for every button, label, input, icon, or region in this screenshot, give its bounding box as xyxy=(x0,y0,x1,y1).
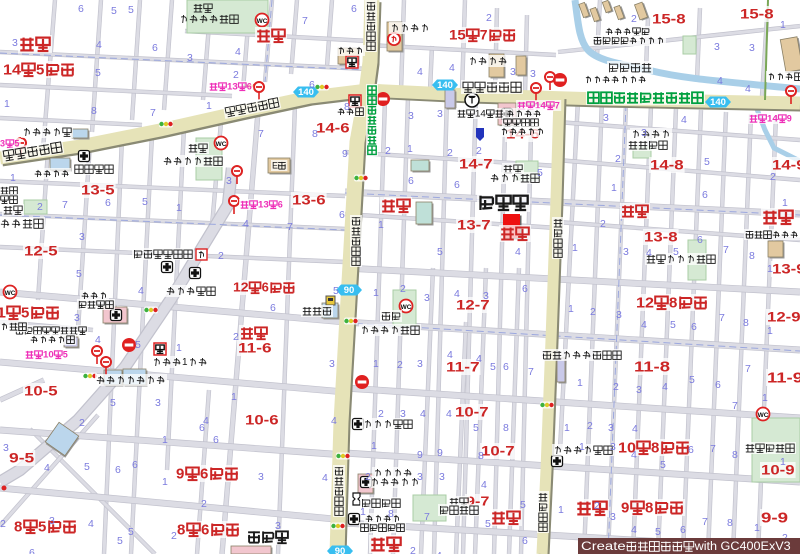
svg-text:2: 2 xyxy=(201,498,207,510)
svg-text:3: 3 xyxy=(437,108,443,120)
svg-text:5: 5 xyxy=(670,319,676,331)
svg-text:7: 7 xyxy=(702,516,708,528)
svg-text:7: 7 xyxy=(302,15,308,27)
svg-text:8: 8 xyxy=(669,294,677,311)
svg-text:1: 1 xyxy=(4,98,10,110)
svg-text:1: 1 xyxy=(373,358,379,370)
svg-text:5: 5 xyxy=(84,461,90,473)
svg-text:5: 5 xyxy=(76,268,82,280)
svg-text:9: 9 xyxy=(417,449,423,461)
svg-text:7: 7 xyxy=(719,312,725,324)
svg-text:5: 5 xyxy=(63,349,68,359)
svg-text:4: 4 xyxy=(481,479,487,491)
svg-text:9: 9 xyxy=(176,465,184,482)
svg-text:12: 12 xyxy=(233,280,249,295)
svg-text:6: 6 xyxy=(201,521,209,538)
svg-text:WC: WC xyxy=(758,412,769,419)
svg-text:13-8: 13-8 xyxy=(644,229,678,245)
svg-text:4: 4 xyxy=(515,246,521,258)
svg-text:3: 3 xyxy=(749,42,755,54)
svg-text:6: 6 xyxy=(200,465,208,482)
svg-text:10-7: 10-7 xyxy=(481,443,515,459)
svg-text:1: 1 xyxy=(767,263,773,275)
svg-text:6: 6 xyxy=(247,81,252,91)
svg-text:6: 6 xyxy=(309,79,315,91)
svg-text:5: 5 xyxy=(117,535,123,547)
svg-text:5: 5 xyxy=(485,518,491,530)
svg-text:11-6: 11-6 xyxy=(238,340,272,356)
svg-text:13-7: 13-7 xyxy=(457,217,491,233)
svg-text:8: 8 xyxy=(388,508,394,520)
svg-text:2: 2 xyxy=(587,420,593,432)
svg-text:2: 2 xyxy=(365,471,371,483)
svg-text:8: 8 xyxy=(503,422,509,434)
svg-text:1: 1 xyxy=(162,434,168,446)
svg-text:E: E xyxy=(272,160,278,170)
svg-text:Create: Create xyxy=(581,541,626,553)
svg-text:6: 6 xyxy=(454,179,460,191)
svg-text:13: 13 xyxy=(258,199,269,209)
svg-text:10: 10 xyxy=(43,349,54,359)
svg-text:5: 5 xyxy=(95,67,101,79)
svg-text:3: 3 xyxy=(623,246,629,258)
svg-text:4: 4 xyxy=(446,408,452,420)
svg-text:6: 6 xyxy=(152,42,158,54)
svg-text:3: 3 xyxy=(641,127,647,139)
svg-text:14-9: 14-9 xyxy=(772,157,800,173)
svg-text:2: 2 xyxy=(37,201,43,213)
svg-text:13-6: 13-6 xyxy=(292,192,326,208)
svg-text:8: 8 xyxy=(651,439,659,456)
svg-text:2: 2 xyxy=(385,145,391,157)
svg-text:6: 6 xyxy=(522,535,528,547)
svg-text:6: 6 xyxy=(408,175,414,187)
svg-text:9: 9 xyxy=(342,148,348,160)
svg-text:WC: WC xyxy=(257,18,268,25)
svg-text:2: 2 xyxy=(631,13,637,25)
svg-text:14: 14 xyxy=(475,108,486,118)
svg-text:2: 2 xyxy=(613,381,619,393)
svg-text:2: 2 xyxy=(410,545,416,554)
svg-text:3: 3 xyxy=(3,442,9,454)
svg-text:4: 4 xyxy=(717,75,723,87)
svg-text:9-5: 9-5 xyxy=(9,450,34,466)
svg-text:90: 90 xyxy=(344,285,355,296)
svg-text:14-6: 14-6 xyxy=(316,120,350,136)
svg-text:3: 3 xyxy=(226,175,232,187)
svg-text:8: 8 xyxy=(177,521,185,538)
svg-text:8: 8 xyxy=(749,250,755,262)
svg-text:1: 1 xyxy=(754,522,760,534)
svg-text:3: 3 xyxy=(0,138,5,148)
svg-text:1: 1 xyxy=(780,19,786,31)
svg-text:3: 3 xyxy=(275,520,281,532)
svg-text:6: 6 xyxy=(115,464,121,476)
svg-text:3: 3 xyxy=(714,41,720,53)
svg-text:7: 7 xyxy=(287,221,293,233)
svg-text:2: 2 xyxy=(397,359,403,371)
svg-text:10-7: 10-7 xyxy=(455,404,489,420)
svg-text:2: 2 xyxy=(447,147,453,159)
svg-text:9-9: 9-9 xyxy=(761,509,788,526)
svg-text:1: 1 xyxy=(231,391,237,403)
svg-text:5: 5 xyxy=(142,196,148,208)
svg-text:140: 140 xyxy=(710,97,726,108)
svg-text:1: 1 xyxy=(360,506,366,518)
svg-text:1: 1 xyxy=(568,303,574,315)
svg-text:5: 5 xyxy=(128,526,134,538)
svg-text:3: 3 xyxy=(608,422,614,434)
svg-text:2: 2 xyxy=(0,518,6,530)
svg-text:4: 4 xyxy=(95,334,101,346)
svg-text:3: 3 xyxy=(603,112,609,124)
svg-text:5: 5 xyxy=(473,422,479,434)
svg-text:4: 4 xyxy=(235,46,241,58)
svg-text:6: 6 xyxy=(270,302,276,314)
svg-text:4: 4 xyxy=(436,550,442,554)
svg-text:8: 8 xyxy=(645,499,653,516)
svg-text:3: 3 xyxy=(417,358,423,370)
svg-text:12-5: 12-5 xyxy=(24,243,58,259)
svg-text:15-8: 15-8 xyxy=(652,11,686,27)
svg-text:5: 5 xyxy=(537,167,543,179)
svg-text:8: 8 xyxy=(312,128,318,140)
svg-text:3: 3 xyxy=(530,68,536,80)
svg-text:6: 6 xyxy=(680,524,686,536)
svg-text:6: 6 xyxy=(503,361,509,373)
svg-text:12-9: 12-9 xyxy=(767,309,800,325)
svg-text:3: 3 xyxy=(616,309,622,321)
svg-text:5: 5 xyxy=(38,518,46,535)
svg-text:6: 6 xyxy=(29,547,35,554)
svg-text:4: 4 xyxy=(322,472,328,484)
svg-text:5: 5 xyxy=(490,361,496,373)
svg-text:5: 5 xyxy=(660,459,666,471)
svg-text:with GC400ExV3: with GC400ExV3 xyxy=(694,541,791,553)
svg-text:7: 7 xyxy=(732,400,738,412)
svg-text:4: 4 xyxy=(646,247,652,259)
svg-text:2: 2 xyxy=(615,153,621,165)
svg-text:13-5: 13-5 xyxy=(81,182,115,198)
svg-text:9: 9 xyxy=(437,447,443,459)
svg-text:1: 1 xyxy=(162,476,168,488)
svg-text:8: 8 xyxy=(732,449,738,461)
svg-text:1: 1 xyxy=(407,143,413,155)
svg-text:3: 3 xyxy=(258,471,264,483)
svg-text:8: 8 xyxy=(727,517,733,529)
svg-text:1: 1 xyxy=(780,456,786,468)
svg-text:10-9: 10-9 xyxy=(761,462,795,478)
svg-text:3: 3 xyxy=(417,471,423,483)
svg-text:3: 3 xyxy=(408,110,414,122)
svg-text:6: 6 xyxy=(213,434,219,446)
svg-text:11-9: 11-9 xyxy=(767,369,800,386)
svg-text:13-9: 13-9 xyxy=(772,261,800,277)
svg-text:1: 1 xyxy=(564,422,570,434)
svg-text:4: 4 xyxy=(331,415,337,427)
svg-text:1: 1 xyxy=(611,182,617,194)
svg-text:7: 7 xyxy=(62,199,68,211)
svg-text:14-7: 14-7 xyxy=(459,156,493,172)
svg-text:4: 4 xyxy=(417,66,423,78)
svg-text:8: 8 xyxy=(14,518,22,535)
svg-text:4: 4 xyxy=(681,114,687,126)
svg-text:4: 4 xyxy=(662,381,668,393)
svg-text:10-5: 10-5 xyxy=(24,383,58,399)
svg-text:5: 5 xyxy=(437,246,443,258)
svg-text:2: 2 xyxy=(594,500,600,512)
svg-text:5: 5 xyxy=(36,61,44,78)
svg-text:1: 1 xyxy=(782,197,788,209)
svg-text:90: 90 xyxy=(335,546,346,554)
svg-text:7: 7 xyxy=(424,511,430,523)
svg-text:4: 4 xyxy=(243,218,249,230)
svg-text:4: 4 xyxy=(476,353,482,365)
svg-text:1: 1 xyxy=(767,325,773,337)
svg-text:4: 4 xyxy=(449,62,455,74)
svg-text:5: 5 xyxy=(128,4,134,16)
svg-text:2: 2 xyxy=(590,306,596,318)
svg-text:WC: WC xyxy=(216,141,227,148)
svg-text:13: 13 xyxy=(227,81,238,91)
svg-text:6: 6 xyxy=(715,379,721,391)
svg-text:WC: WC xyxy=(401,304,412,311)
svg-text:6: 6 xyxy=(702,189,708,201)
svg-text:1: 1 xyxy=(10,172,16,184)
svg-text:1: 1 xyxy=(182,357,188,368)
svg-text:2: 2 xyxy=(600,218,606,230)
svg-text:6: 6 xyxy=(688,444,694,456)
svg-text:1: 1 xyxy=(762,392,768,404)
svg-text:3: 3 xyxy=(155,397,161,409)
svg-text:5: 5 xyxy=(333,285,339,297)
svg-text:14: 14 xyxy=(767,113,778,123)
svg-text:5: 5 xyxy=(655,526,661,538)
svg-text:6: 6 xyxy=(691,321,697,333)
svg-text:7: 7 xyxy=(528,366,534,378)
svg-text:7: 7 xyxy=(710,443,716,455)
svg-text:1: 1 xyxy=(373,287,379,299)
svg-text:8: 8 xyxy=(478,450,484,462)
svg-text:8: 8 xyxy=(91,105,97,117)
svg-text:4: 4 xyxy=(44,462,50,474)
svg-text:2: 2 xyxy=(378,408,384,420)
svg-text:3: 3 xyxy=(187,52,193,64)
svg-text:2: 2 xyxy=(79,417,85,429)
svg-text:4: 4 xyxy=(447,349,453,361)
svg-text:12: 12 xyxy=(636,294,654,311)
svg-text:5: 5 xyxy=(689,374,695,386)
svg-text:5: 5 xyxy=(21,304,29,321)
svg-text:9: 9 xyxy=(621,499,629,516)
svg-text:5: 5 xyxy=(110,397,116,409)
svg-text:1: 1 xyxy=(572,242,578,254)
svg-text:9: 9 xyxy=(787,113,792,123)
svg-text:3: 3 xyxy=(424,292,430,304)
svg-text:7: 7 xyxy=(745,363,751,375)
svg-text:2: 2 xyxy=(233,331,239,343)
svg-text:11-8: 11-8 xyxy=(634,358,670,375)
svg-text:3: 3 xyxy=(49,515,55,527)
svg-text:7: 7 xyxy=(723,244,729,256)
svg-text:3: 3 xyxy=(610,441,616,453)
svg-text:14-8: 14-8 xyxy=(650,157,684,173)
svg-text:2: 2 xyxy=(770,171,776,183)
svg-text:3: 3 xyxy=(439,471,445,483)
svg-text:3: 3 xyxy=(400,408,406,420)
svg-text:1: 1 xyxy=(579,441,585,453)
svg-text:2: 2 xyxy=(400,283,406,295)
svg-text:6: 6 xyxy=(78,3,84,15)
svg-text:3: 3 xyxy=(610,511,616,523)
svg-text:5: 5 xyxy=(111,5,117,17)
svg-text:6: 6 xyxy=(339,209,345,221)
svg-text:5: 5 xyxy=(704,156,710,168)
svg-text:3: 3 xyxy=(329,358,335,370)
svg-text:1: 1 xyxy=(176,202,182,214)
svg-text:2: 2 xyxy=(476,145,482,157)
svg-text:8: 8 xyxy=(743,317,749,329)
svg-text:1: 1 xyxy=(176,342,182,354)
svg-text:4: 4 xyxy=(420,408,426,420)
svg-text:7: 7 xyxy=(480,27,488,43)
svg-text:8: 8 xyxy=(344,101,350,113)
svg-text:6: 6 xyxy=(105,197,111,209)
svg-text:140: 140 xyxy=(437,80,453,91)
svg-text:1: 1 xyxy=(206,100,212,112)
svg-text:6: 6 xyxy=(278,199,283,209)
svg-text:6: 6 xyxy=(351,3,357,15)
svg-text:6: 6 xyxy=(522,283,528,295)
svg-text:1: 1 xyxy=(371,440,377,452)
svg-text:2: 2 xyxy=(233,69,239,81)
svg-text:WC: WC xyxy=(5,290,16,297)
svg-text:10-6: 10-6 xyxy=(245,412,279,428)
svg-text:11: 11 xyxy=(0,304,6,321)
svg-text:6: 6 xyxy=(199,422,205,434)
svg-text:5: 5 xyxy=(520,499,526,511)
svg-text:2: 2 xyxy=(218,250,224,262)
svg-text:3: 3 xyxy=(636,384,642,396)
svg-text:4: 4 xyxy=(632,423,638,435)
svg-text:15: 15 xyxy=(449,27,466,43)
svg-text:1: 1 xyxy=(577,377,583,389)
svg-text:5: 5 xyxy=(673,246,679,258)
svg-text:4: 4 xyxy=(454,288,460,300)
svg-text:4: 4 xyxy=(88,518,94,530)
svg-text:4: 4 xyxy=(631,449,637,461)
svg-text:3: 3 xyxy=(483,290,489,302)
svg-text:3: 3 xyxy=(12,37,18,49)
svg-text:5: 5 xyxy=(135,339,141,351)
svg-text:3: 3 xyxy=(510,66,516,78)
svg-text:6: 6 xyxy=(697,234,703,246)
svg-text:7: 7 xyxy=(258,128,264,140)
svg-text:6: 6 xyxy=(132,459,138,471)
svg-text:4: 4 xyxy=(745,83,751,95)
svg-text:4: 4 xyxy=(631,524,637,536)
svg-text:4: 4 xyxy=(641,319,647,331)
svg-text:2: 2 xyxy=(486,12,492,24)
svg-text:1: 1 xyxy=(558,504,564,516)
svg-text:14: 14 xyxy=(3,61,22,78)
svg-text:6: 6 xyxy=(262,280,269,295)
svg-text:3: 3 xyxy=(79,231,85,243)
svg-text:1: 1 xyxy=(378,219,384,231)
svg-text:2: 2 xyxy=(171,530,177,542)
svg-text:4: 4 xyxy=(138,285,144,297)
svg-text:7: 7 xyxy=(150,107,156,119)
svg-text:15-8: 15-8 xyxy=(740,6,774,22)
svg-text:4: 4 xyxy=(96,39,102,51)
svg-text:7: 7 xyxy=(555,100,560,110)
svg-text:3: 3 xyxy=(74,312,80,324)
